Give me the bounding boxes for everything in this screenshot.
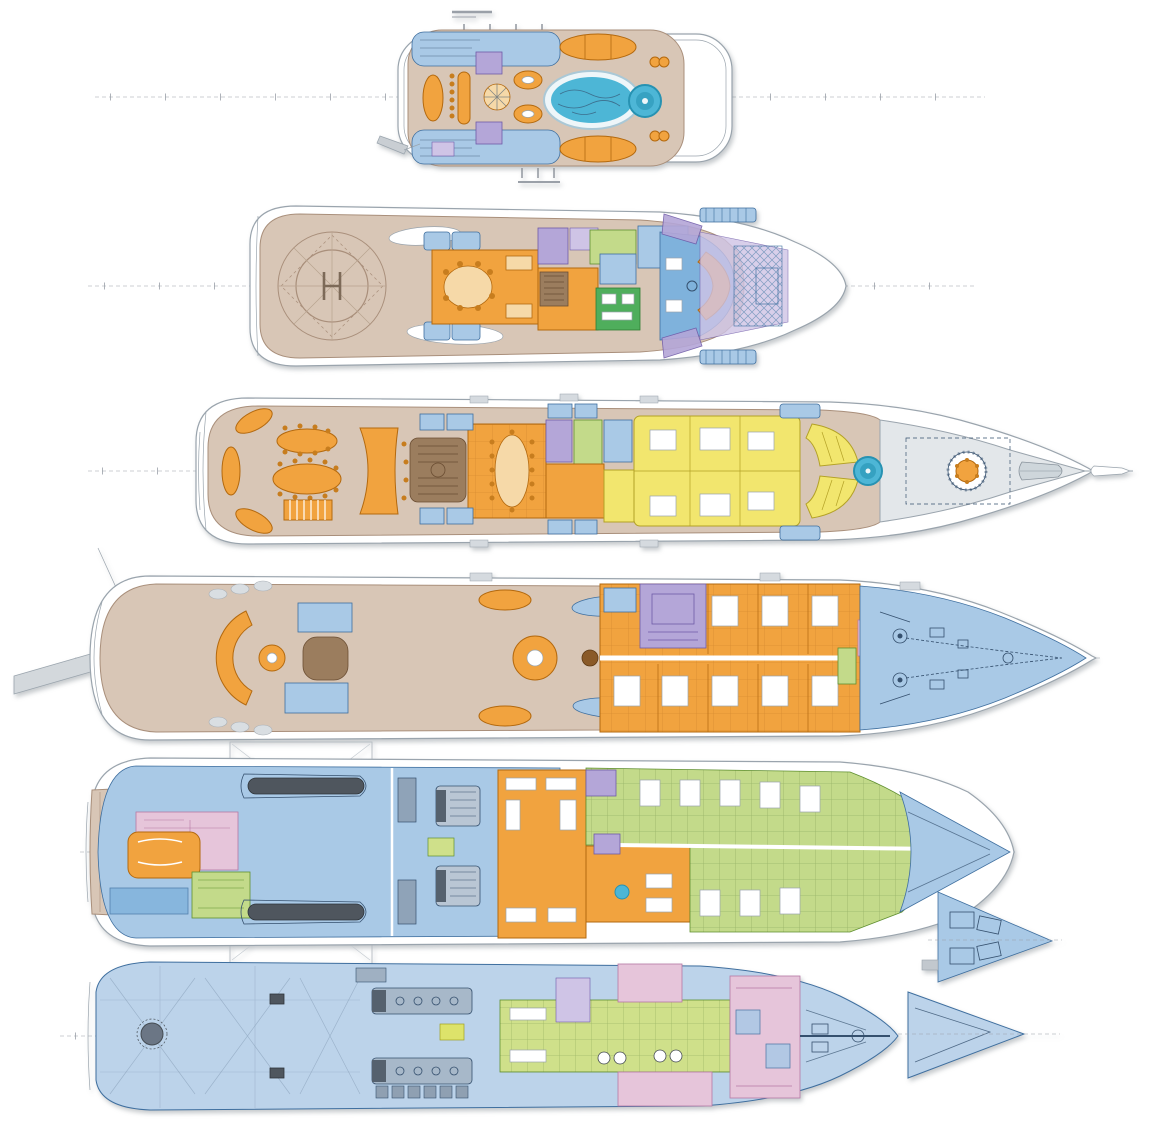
compass-table bbox=[484, 84, 510, 110]
dining-table bbox=[444, 266, 492, 308]
aft-mast-marks bbox=[518, 168, 560, 182]
sun-deck bbox=[377, 12, 732, 182]
cinema-room bbox=[640, 584, 706, 648]
inset-callout-box bbox=[922, 960, 938, 970]
bow-working-deck bbox=[860, 586, 1086, 730]
bow-inset-lower bbox=[922, 892, 1062, 982]
lobby bbox=[303, 637, 348, 680]
stair-wedge bbox=[838, 648, 856, 684]
cabin-blue bbox=[600, 254, 636, 284]
side-pass-stbd bbox=[780, 526, 820, 540]
bitt-stbd bbox=[270, 1068, 284, 1078]
stabilizer-rooms bbox=[730, 976, 800, 1098]
jacuzzi bbox=[629, 85, 661, 117]
crew-mess bbox=[586, 846, 690, 922]
private-dining bbox=[546, 464, 604, 518]
helipad bbox=[278, 232, 386, 340]
cabin-purple bbox=[538, 228, 568, 264]
main-deck bbox=[14, 548, 1096, 740]
store-locker bbox=[432, 142, 454, 156]
main-salon-and-cabins bbox=[582, 584, 878, 732]
salon bbox=[468, 424, 546, 518]
store-lavender bbox=[556, 978, 590, 1022]
foyer-blue bbox=[604, 588, 636, 612]
galley bbox=[498, 770, 586, 938]
bitt-port bbox=[270, 994, 284, 1004]
side-pass-port bbox=[780, 404, 820, 418]
cold-room-1 bbox=[586, 770, 616, 796]
store-room bbox=[110, 888, 188, 914]
control-booth bbox=[428, 838, 454, 856]
tender bbox=[1019, 462, 1062, 480]
bridge-deck bbox=[250, 206, 846, 366]
gym-room bbox=[596, 288, 640, 330]
switchboard-stbd bbox=[398, 880, 416, 924]
day-room-purple bbox=[546, 420, 572, 462]
pantry-stair bbox=[540, 272, 568, 306]
deck-plan-drawing bbox=[0, 0, 1174, 1130]
tank-deck bbox=[88, 962, 1060, 1110]
lower-deck bbox=[86, 742, 1062, 982]
swimming-pool bbox=[544, 71, 640, 129]
cold-store-fwd bbox=[618, 964, 682, 1002]
owner-deck bbox=[196, 394, 1133, 547]
cold-store-aft bbox=[618, 1072, 712, 1106]
day-head bbox=[476, 122, 502, 144]
day-head-stbd bbox=[285, 683, 348, 713]
mess-table bbox=[615, 885, 629, 899]
foredeck-working-area bbox=[734, 246, 782, 326]
lounge-oval bbox=[423, 75, 443, 121]
dumbwaiter-room bbox=[476, 52, 502, 74]
laundry bbox=[500, 1000, 730, 1072]
switchboard-port bbox=[398, 778, 416, 822]
day-room-blue bbox=[604, 420, 632, 462]
fireplace bbox=[582, 650, 598, 666]
yacht-deck-plans bbox=[0, 0, 1174, 1130]
cold-room-2 bbox=[594, 834, 620, 854]
spa-pool bbox=[854, 457, 882, 485]
main-staircase bbox=[410, 438, 466, 502]
sky-lounge bbox=[432, 250, 538, 324]
bowsprit bbox=[1085, 466, 1133, 476]
forepeak-inset bbox=[898, 992, 1060, 1078]
day-head-port bbox=[298, 603, 352, 632]
generator bbox=[440, 1024, 464, 1040]
day-room-green bbox=[574, 420, 602, 466]
salon-table bbox=[495, 435, 529, 507]
awning bbox=[284, 500, 332, 520]
